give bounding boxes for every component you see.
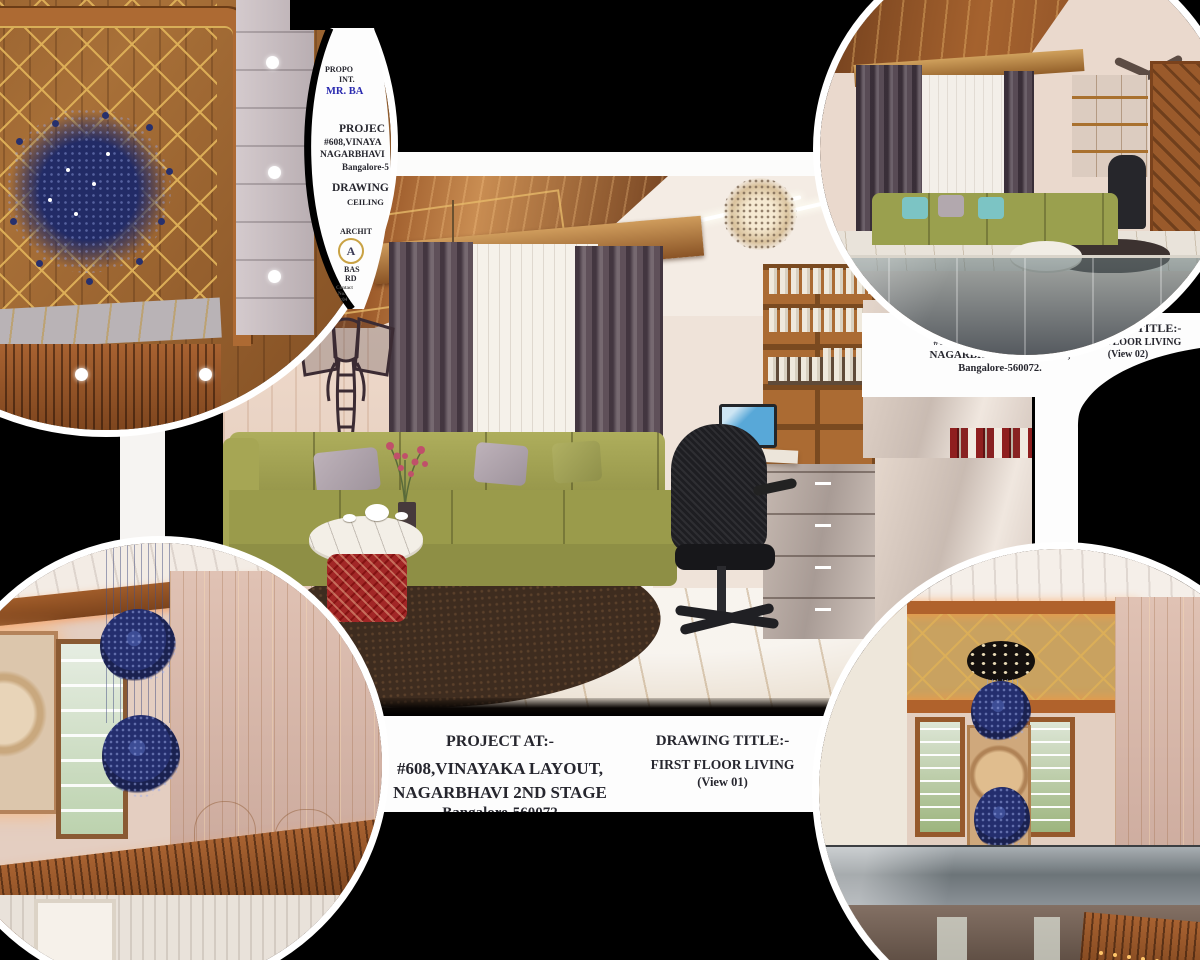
firm-name-3: RD — [345, 275, 357, 283]
wood-window-right — [1025, 717, 1075, 837]
firm-name-1: ARCHIT — [340, 228, 372, 236]
presentation-board: PROPO INT. MR. BA PROJEC #608,VINAYA NAG… — [0, 0, 1200, 960]
project-address-3: Bangalore-560072. — [920, 363, 1080, 374]
wood-slat-band — [0, 344, 221, 430]
living-room-render-view02-vignette — [813, 0, 1200, 362]
orchid-flowers — [375, 434, 435, 506]
double-height-render-vignette — [812, 542, 1200, 960]
teacup — [343, 514, 356, 522]
window-reflection — [937, 917, 967, 960]
bottom-title-panel: PROJECT AT:- #608,VINAYAKA LAYOUT, NAGAR… — [340, 716, 835, 812]
project-address-3-clipped: Bangalore-560072 — [410, 806, 590, 812]
title-block: PROPO INT. MR. BA PROJEC #608,VINAYA NAG… — [300, 28, 392, 309]
office-chair-stem — [717, 566, 726, 614]
blue-crystal-chandelier — [974, 787, 1030, 851]
drawing-title-label: DRAWING TITLE:- — [635, 734, 810, 750]
gray-pillow — [938, 195, 964, 217]
blue-crystal-chandelier — [971, 681, 1031, 743]
blue-crystal-chandelier — [100, 609, 176, 683]
downlight — [75, 368, 88, 381]
downlight — [268, 166, 281, 179]
downlight — [268, 270, 281, 283]
contact-micro-text: Contact — [336, 286, 353, 291]
drawing-value: CEILING — [347, 198, 384, 207]
medallion-sparkles — [66, 168, 70, 172]
krishna-relief-mural — [0, 631, 58, 814]
teapot — [365, 504, 389, 521]
contact-micro-text: c04 — [340, 298, 347, 303]
drawing-title-2: (View 01) — [635, 776, 810, 789]
black-mask-patch — [290, 0, 396, 30]
project-address-1: #608,VINAYAKA LAYOUT, — [360, 760, 640, 778]
downlight — [199, 368, 212, 381]
project-address-2: NAGARBHAVI — [320, 151, 385, 161]
interior-label: INT. — [339, 76, 355, 84]
project-address-3: Bangalore-5 — [342, 163, 389, 172]
downlight — [266, 56, 279, 69]
client-name: MR. BA — [326, 86, 363, 97]
teacup — [395, 512, 408, 520]
project-address-1: #608,VINAYA — [324, 139, 382, 149]
gray-pillow — [473, 442, 528, 486]
medallion-petal-dots — [16, 138, 23, 145]
architect-logo-icon: A — [338, 238, 364, 264]
round-chandelier-plate — [967, 641, 1035, 681]
white-door-frame — [34, 899, 116, 960]
olive-pillow — [552, 440, 603, 483]
blue-crystal-chandelier — [102, 715, 180, 797]
glass-railing — [820, 255, 1200, 355]
glass-railing-band — [819, 845, 1200, 909]
sofa-seat — [229, 490, 677, 548]
gold-light-dots — [1099, 951, 1103, 955]
foyer-render-vignette — [0, 536, 389, 960]
drawing-label: DRAWING — [332, 182, 389, 194]
drawer-handles — [815, 482, 831, 485]
project-address-2: NAGARBHAVI 2ND STAGE — [360, 784, 640, 802]
teal-pillow — [978, 197, 1004, 219]
wood-door — [1150, 61, 1200, 245]
crystal-chandelier — [723, 178, 797, 250]
blue-floral-medallion — [6, 108, 171, 273]
gray-pillow — [313, 447, 381, 495]
contact-micro-text: No. — [338, 292, 345, 297]
project-at-label: PROJECT AT:- — [410, 734, 590, 751]
proposed-label: PROPO — [325, 66, 353, 74]
window-reflection — [1034, 917, 1060, 960]
wood-window-left — [915, 717, 965, 837]
drawing-title-1: FIRST FLOOR LIVING — [635, 758, 810, 772]
project-label: PROJEC — [339, 123, 385, 135]
teal-pillow — [902, 197, 928, 219]
